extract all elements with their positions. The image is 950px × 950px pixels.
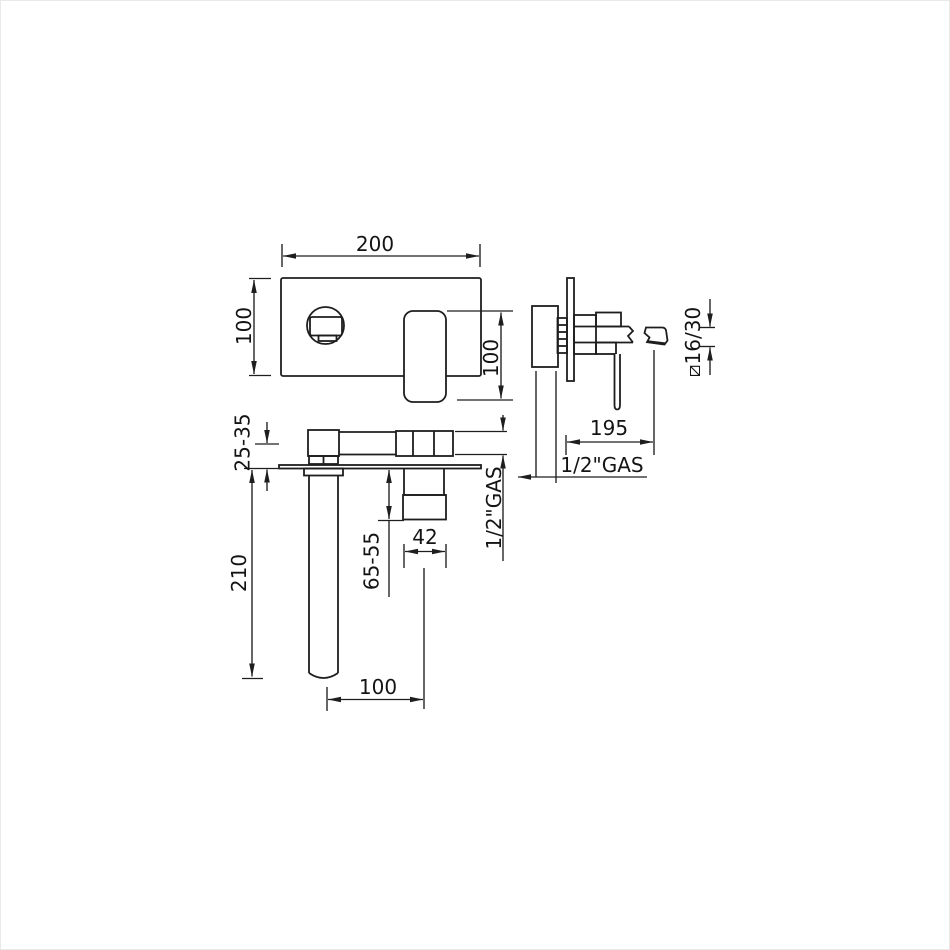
bottom-spout-nut (309, 456, 338, 464)
bottom-spout-body (308, 430, 339, 456)
spout-break-line (628, 327, 633, 343)
side-inwall-body (532, 306, 558, 367)
dim-plate-width: 200 (282, 232, 480, 267)
dim-plate-height: 100 (232, 279, 271, 376)
dim-label-plate-width: 200 (356, 232, 394, 256)
dim-handle-width: 42 (404, 525, 446, 568)
front-lever-handle (404, 311, 446, 402)
side-spout-outlet (645, 328, 668, 345)
bottom-spout-tube (309, 476, 338, 679)
dim-handle-projection: 65-55 (360, 470, 405, 597)
dim-label-handle-width: 42 (412, 525, 437, 549)
bottom-connecting-bar (339, 432, 396, 455)
dim-label-spout-reach: 195 (590, 416, 628, 440)
drawing-canvas: 200 100 100 (0, 0, 950, 950)
dim-label-spout-section: ⧄16/30 (681, 307, 705, 377)
gas-side-label: 1/2"GAS (560, 453, 643, 477)
side-lever-handle (615, 354, 621, 410)
side-wall-plate (567, 278, 574, 381)
side-spout-base-bottom (596, 343, 616, 355)
dim-wall-depth: 25-35 (231, 413, 280, 491)
dim-label-handle-projection: 65-55 (360, 532, 384, 590)
dim-spout-section: ⧄16/30 (681, 299, 715, 377)
gas-bottom-label: 1/2"GAS (482, 466, 506, 549)
bottom-handle-end (403, 495, 446, 520)
bottom-handle-projection (403, 469, 446, 520)
dim-label-handle-length: 100 (479, 339, 503, 377)
front-view (281, 278, 481, 402)
front-spout-flange (307, 307, 344, 344)
dim-gas-bottom: 1/2"GAS (455, 415, 507, 561)
callout-gas-side: 1/2"GAS (518, 453, 647, 477)
dim-label-plate-height: 100 (232, 307, 256, 345)
bottom-mixer-body (396, 431, 453, 456)
front-spout-lip (319, 336, 337, 342)
dim-label-wall-depth: 25-35 (231, 413, 255, 471)
bottom-spout-escutcheon (304, 469, 343, 476)
dim-handle-length: 100 (447, 311, 513, 400)
front-wall-plate (281, 278, 481, 376)
side-spout-tube (574, 327, 633, 343)
technical-drawing-svg: 200 100 100 (1, 1, 950, 950)
side-body-block (574, 315, 596, 354)
side-spout-base-top (596, 313, 621, 327)
dim-spout-reach: 195 (566, 350, 654, 455)
front-spout-end (310, 317, 342, 336)
dim-spout-projection: 210 (227, 470, 263, 679)
dim-label-spout-to-handle: 100 (359, 675, 397, 699)
side-cartridge (558, 318, 568, 353)
dim-label-spout-projection: 210 (227, 554, 251, 592)
dim-spout-to-handle: 100 (327, 675, 423, 711)
